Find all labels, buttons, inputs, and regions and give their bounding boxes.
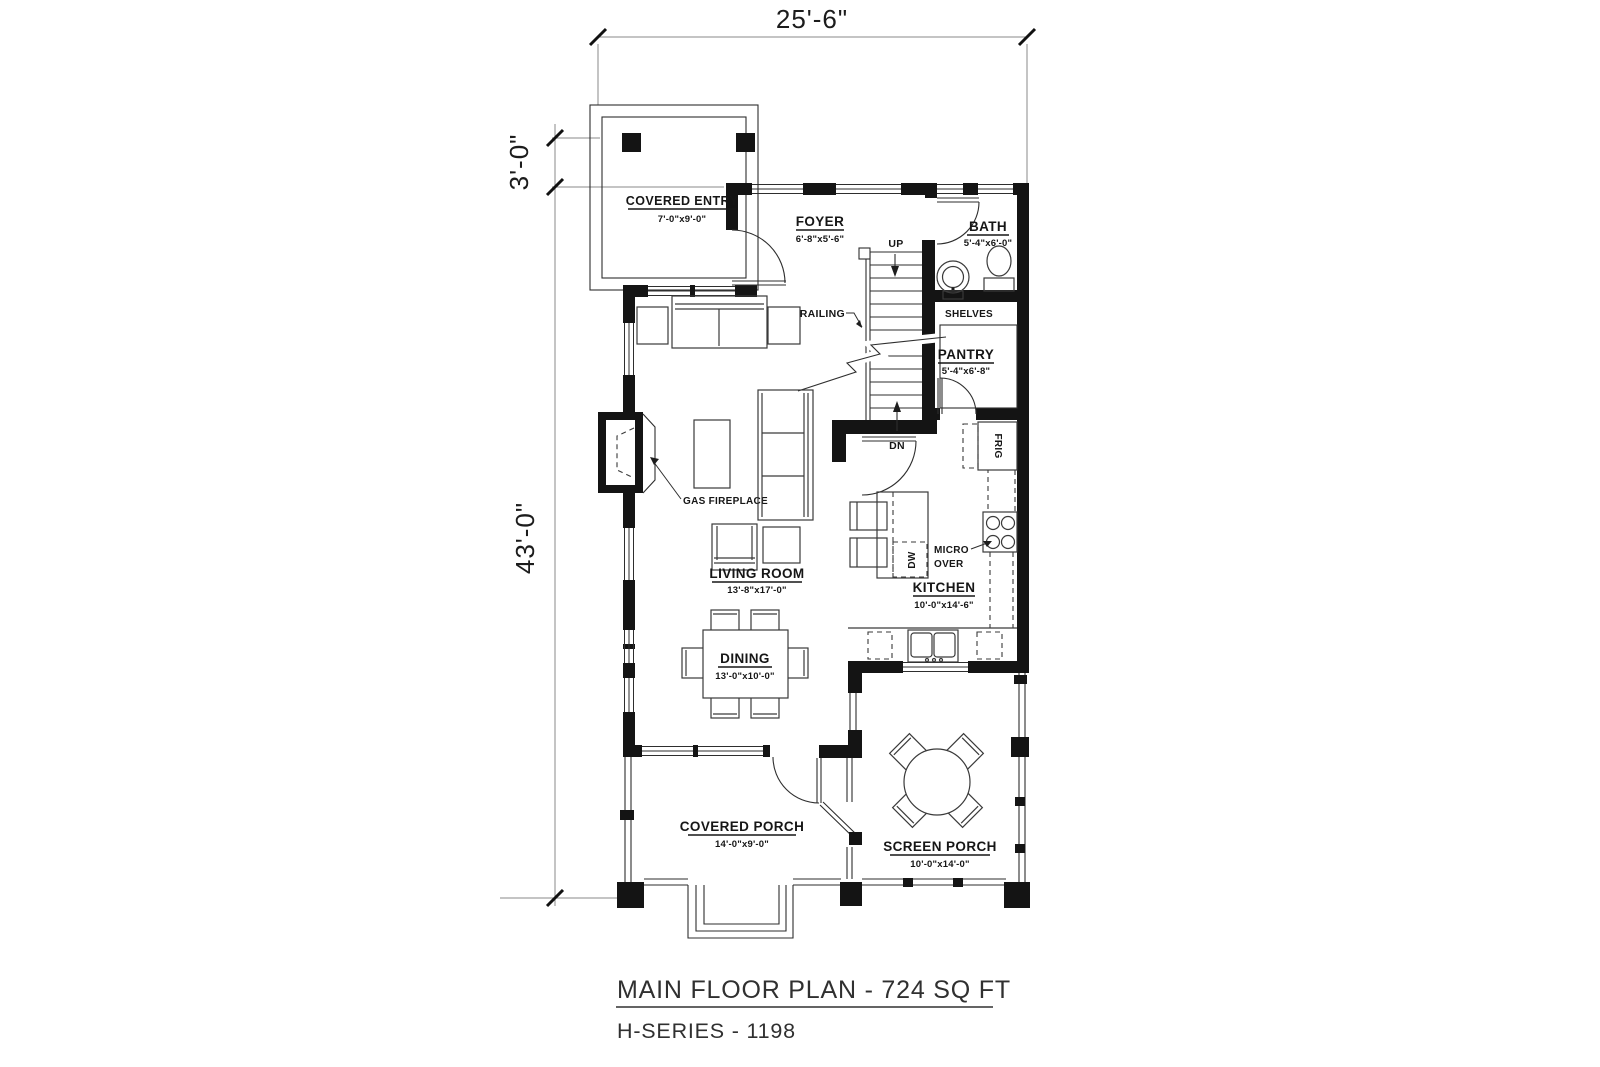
side-table (763, 527, 800, 563)
svg-text:5'-4"x6'-0": 5'-4"x6'-0" (964, 238, 1012, 249)
svg-text:SCREEN PORCH: SCREEN PORCH (883, 839, 997, 854)
room-label-dining: DINING 13'-0"x10'-0" (715, 651, 774, 682)
dw-label: DW (907, 551, 918, 569)
room-label-screen-porch: SCREEN PORCH 10'-0"x14'-0" (883, 839, 997, 870)
screen-door (820, 802, 862, 845)
title-block: MAIN FLOOR PLAN - 724 SQ FT H-SERIES - 1… (616, 976, 1011, 1043)
svg-text:COVERED ENTRY: COVERED ENTRY (626, 194, 739, 208)
micro-label: MICRO (934, 545, 969, 556)
refrigerator: FRIG (963, 422, 1017, 470)
porch-divider (847, 673, 862, 879)
svg-text:10'-0"x14'-6": 10'-0"x14'-6" (914, 600, 973, 611)
svg-text:14'-0"x9'-0": 14'-0"x9'-0" (715, 839, 769, 850)
shelves-label: SHELVES (945, 309, 993, 320)
toilet (984, 246, 1014, 291)
dn-label: DN (889, 440, 905, 452)
svg-text:BATH: BATH (969, 219, 1007, 234)
dimension-left: 3'-0" 43'-0" (500, 124, 724, 906)
dimension-overall-width: 25'-6" (590, 4, 1035, 183)
island-stools (850, 502, 887, 567)
loveseat (672, 296, 767, 348)
stove (983, 512, 1017, 552)
room-label-covered-porch: COVERED PORCH 14'-0"x9'-0" (680, 819, 804, 850)
plan-subtitle: H-SERIES - 1198 (617, 1019, 796, 1043)
svg-text:FOYER: FOYER (796, 214, 845, 229)
room-label-living-room: LIVING ROOM 13'-8"x17'-0" (709, 566, 804, 596)
svg-text:PANTRY: PANTRY (938, 347, 994, 362)
side-table (637, 307, 668, 344)
svg-text:DINING: DINING (720, 651, 770, 666)
room-label-kitchen: KITCHEN 10'-0"x14'-6" (913, 580, 976, 611)
coffee-table (694, 420, 730, 488)
dim-entry-depth-text: 3'-0" (504, 134, 534, 191)
room-label-pantry: PANTRY 5'-4"x6'-8" (938, 347, 994, 377)
porch-table (904, 749, 970, 815)
svg-text:6'-8"x5'-6": 6'-8"x5'-6" (796, 234, 844, 245)
front-door (732, 230, 786, 285)
svg-text:10'-0"x14'-0": 10'-0"x14'-0" (910, 859, 969, 870)
side-table (768, 307, 800, 344)
room-label-foyer: FOYER 6'-8"x5'-6" (796, 214, 845, 245)
svg-text:5'-4"x6'-8": 5'-4"x6'-8" (942, 366, 990, 377)
svg-text:7'-0"x9'-0": 7'-0"x9'-0" (658, 214, 706, 225)
porch-table-set (890, 734, 984, 828)
dim-depth-text: 43'-0" (510, 502, 540, 574)
railing-callout: RAILING (800, 308, 862, 328)
armchair (712, 524, 757, 570)
gas-fireplace (598, 412, 655, 493)
svg-text:13'-0"x10'-0": 13'-0"x10'-0" (715, 671, 774, 682)
svg-text:13'-8"x17'-0": 13'-8"x17'-0" (727, 585, 786, 596)
pantry-door (938, 378, 976, 414)
dim-width-text: 25'-6" (776, 4, 848, 34)
kitchen-island: DW (877, 492, 928, 578)
svg-text:KITCHEN: KITCHEN (913, 580, 976, 595)
railing-label: RAILING (800, 308, 845, 320)
floor-plan-drawing: 25'-6" 3'-0" 43'-0" (0, 0, 1600, 1067)
porch-steps (688, 885, 793, 938)
gas-fireplace-callout: GAS FIREPLACE (650, 457, 768, 507)
counter-dashed (988, 470, 1015, 512)
svg-text:LIVING ROOM: LIVING ROOM (709, 566, 804, 581)
floor-plan-page: 25'-6" 3'-0" 43'-0" (0, 0, 1600, 1067)
svg-text:COVERED PORCH: COVERED PORCH (680, 819, 804, 834)
room-label-covered-entry: COVERED ENTRY 7'-0"x9'-0" (626, 194, 739, 225)
frig-label: FRIG (992, 433, 1003, 458)
walls (623, 183, 1029, 758)
over-label: OVER (934, 559, 964, 570)
porch-door (773, 757, 821, 803)
up-label: UP (888, 238, 903, 250)
room-label-bath: BATH 5'-4"x6'-0" (964, 219, 1012, 249)
kitchen-sink (908, 630, 958, 662)
gas-fireplace-label: GAS FIREPLACE (683, 496, 768, 507)
plan-title: MAIN FLOOR PLAN - 724 SQ FT (617, 976, 1011, 1004)
